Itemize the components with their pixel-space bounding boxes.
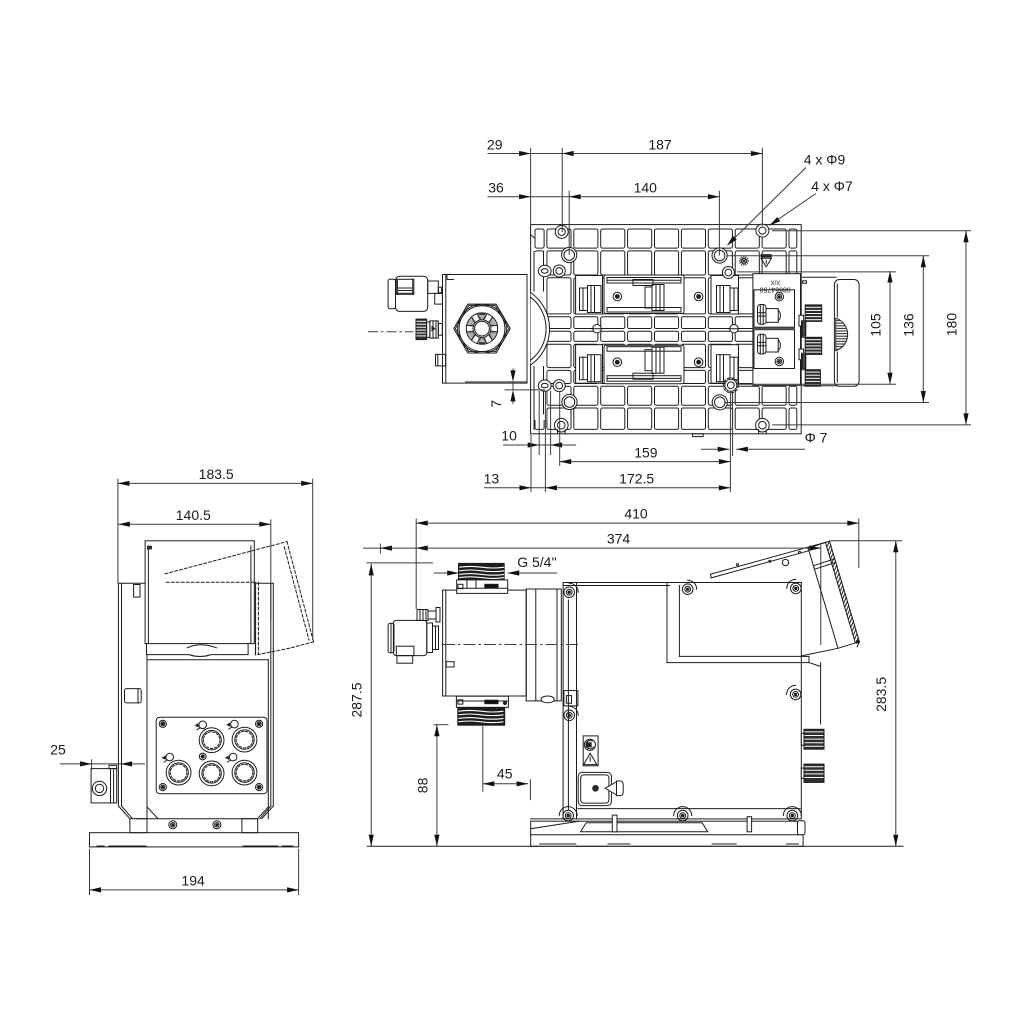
svg-text:4 x Φ9: 4 x Φ9	[804, 152, 846, 168]
svg-text:140: 140	[634, 180, 658, 196]
svg-text:98664750: 98664750	[760, 286, 791, 293]
svg-text:159: 159	[634, 445, 658, 461]
svg-text:194: 194	[181, 873, 205, 889]
svg-text:136: 136	[901, 313, 917, 337]
svg-text:105: 105	[868, 313, 884, 337]
svg-text:4 x Φ7: 4 x Φ7	[811, 178, 853, 194]
svg-text:283.5: 283.5	[873, 677, 889, 712]
svg-text:Φ 7: Φ 7	[805, 430, 828, 446]
svg-text:7: 7	[488, 400, 504, 408]
svg-text:36: 36	[488, 180, 504, 196]
svg-text:183.5: 183.5	[199, 466, 234, 482]
svg-text:374: 374	[607, 531, 631, 547]
svg-text:G 5/4'': G 5/4''	[517, 554, 557, 570]
svg-text:25: 25	[50, 742, 66, 758]
svg-text:287.5: 287.5	[349, 682, 365, 717]
svg-text:10: 10	[501, 428, 517, 444]
svg-text:172.5: 172.5	[619, 470, 654, 486]
svg-text:140.5: 140.5	[176, 507, 211, 523]
svg-text:410: 410	[624, 506, 648, 522]
svg-text:45: 45	[497, 765, 513, 781]
svg-text:88: 88	[415, 777, 431, 793]
svg-text:187: 187	[648, 137, 672, 153]
svg-text:29: 29	[487, 137, 503, 153]
svg-text:X/X: X/X	[771, 278, 781, 284]
svg-text:180: 180	[944, 313, 960, 337]
svg-text:13: 13	[484, 470, 500, 486]
